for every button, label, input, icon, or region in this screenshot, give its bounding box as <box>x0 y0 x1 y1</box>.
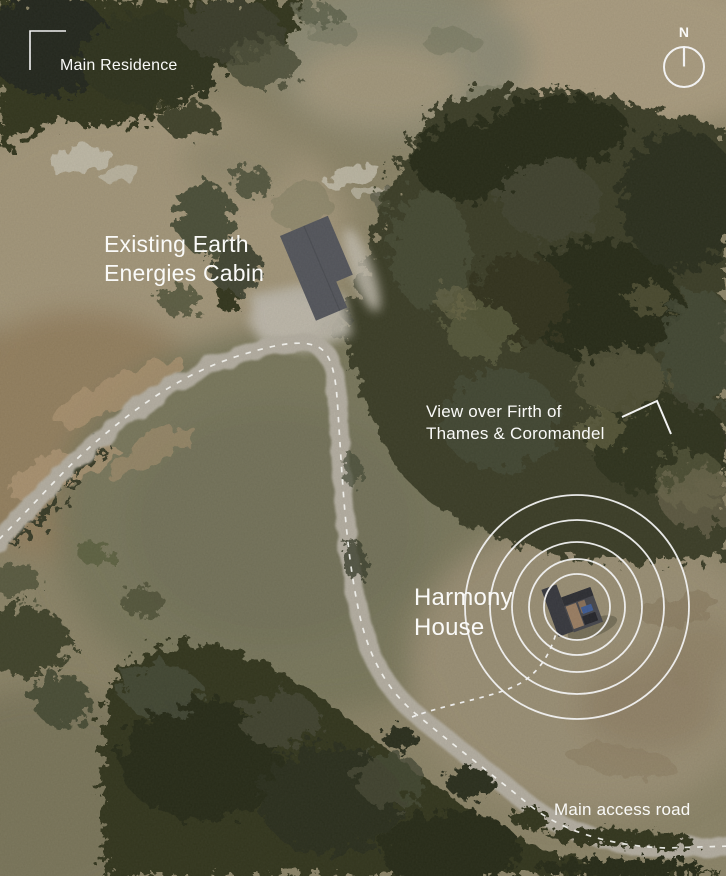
aerial-site-map: Main Residence Existing Earth Energies C… <box>0 0 726 876</box>
harmony-house-label: Harmony House <box>414 583 513 643</box>
existing-cabin-label-line1: Existing Earth <box>104 230 264 259</box>
compass-north-label: N <box>669 24 699 40</box>
main-residence-label: Main Residence <box>60 57 178 75</box>
view-label-line2: Thames & Coromandel <box>426 423 605 445</box>
harmony-house-label-line1: Harmony <box>414 583 513 613</box>
existing-cabin-label-line2: Energies Cabin <box>104 259 264 288</box>
harmony-house-label-line2: House <box>414 613 513 643</box>
existing-cabin-label: Existing Earth Energies Cabin <box>104 230 264 288</box>
terrain-graphic <box>0 0 726 876</box>
view-label-line1: View over Firth of <box>426 401 605 423</box>
grain-overlay-light <box>0 0 726 876</box>
main-access-road-label: Main access road <box>554 799 690 821</box>
view-label: View over Firth of Thames & Coromandel <box>426 401 605 445</box>
